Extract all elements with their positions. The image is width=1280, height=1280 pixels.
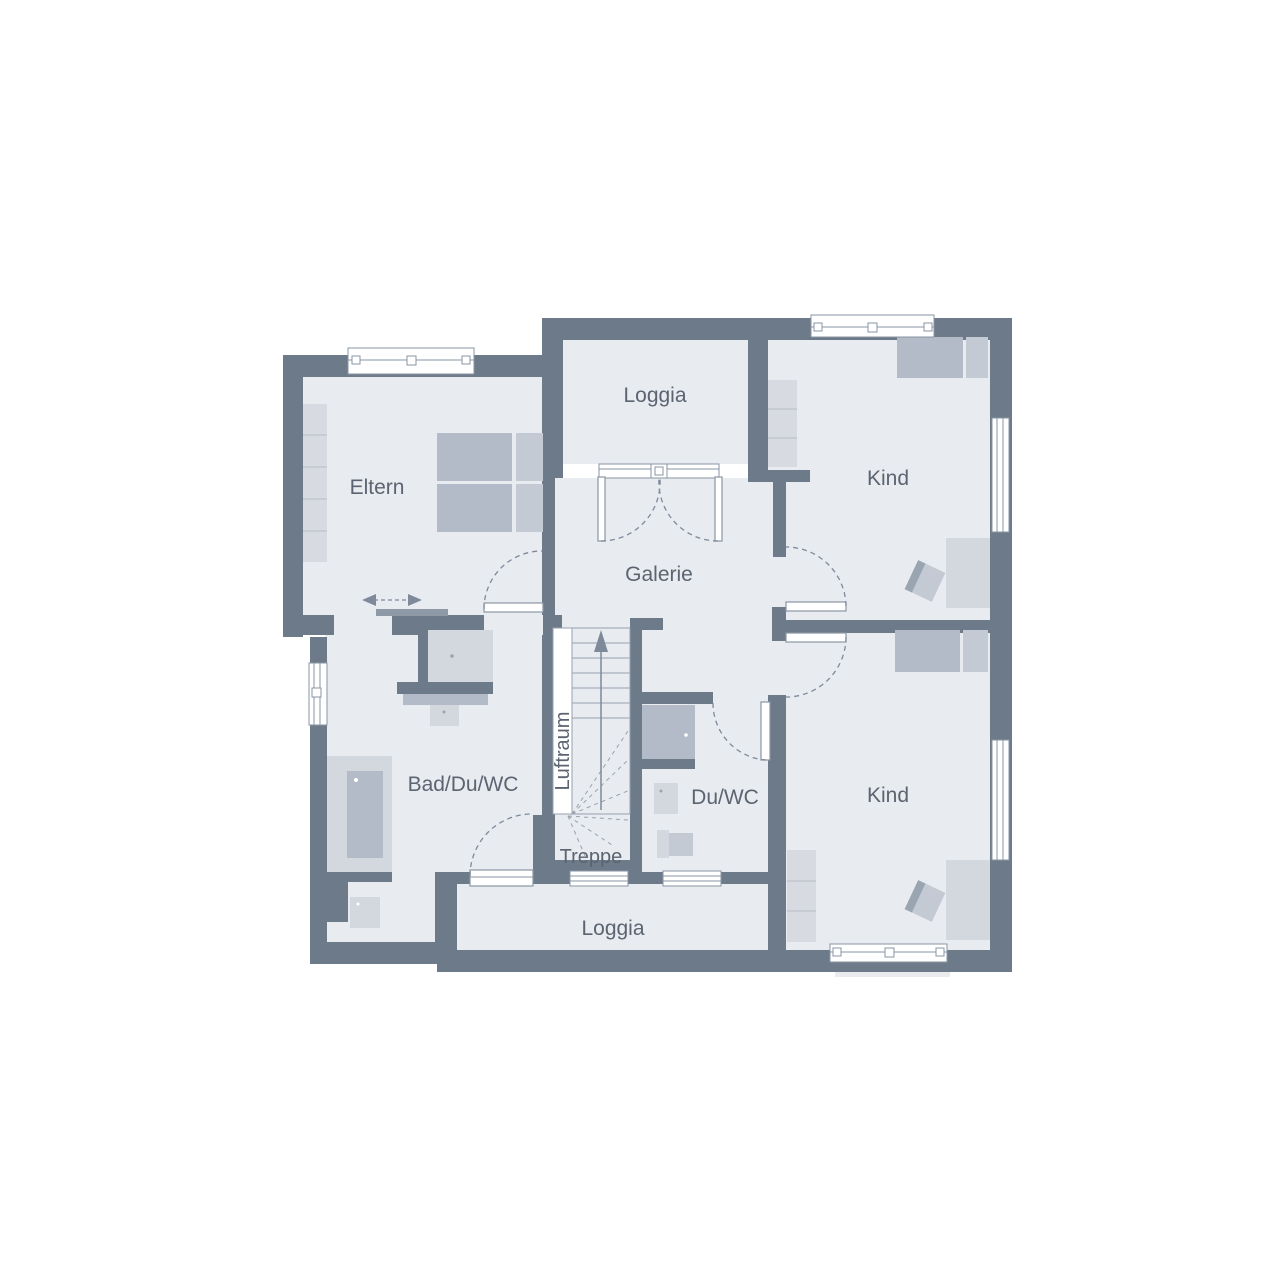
wall-eltern-galerie: [542, 478, 555, 635]
window-loggia-bottom-left: [570, 871, 628, 886]
label-kind-top: Kind: [867, 467, 909, 490]
wall-stair-stub: [630, 618, 663, 630]
desk-kind-bottom: [946, 860, 990, 940]
washbasin-bad: [350, 897, 380, 928]
wardrobe-kind-top: [768, 380, 797, 467]
bed-kind-top: [897, 337, 988, 378]
wall-duwc-top: [642, 692, 713, 704]
window-kind-top: [811, 315, 934, 337]
door-leaf-duwc: [761, 702, 770, 760]
window-eltern-top: [348, 348, 474, 374]
window-loggia-bottom-right: [663, 871, 721, 886]
label-loggia-bottom: Loggia: [581, 917, 644, 940]
wall-bad-pillar: [327, 882, 348, 922]
label-treppe: Treppe: [560, 846, 623, 868]
wall-duwc-kind: [768, 695, 786, 950]
loggia-door-threshold: [599, 464, 719, 478]
shadow-line: [835, 972, 950, 977]
door-leaf-kind-bottom: [786, 633, 846, 642]
door-leaf-bad: [470, 870, 533, 886]
desk-kind-top: [946, 538, 990, 608]
label-loggia-top: Loggia: [623, 384, 686, 407]
sink-duwc: [654, 783, 678, 814]
wall-shower-stub: [418, 630, 428, 688]
wall-loggia-left: [542, 318, 563, 478]
bathtub: [327, 756, 392, 872]
wall-tub-stub: [327, 872, 392, 882]
label-galerie: Galerie: [625, 563, 693, 586]
door-leaf-kind-top: [786, 602, 846, 611]
bed-kind-bottom: [895, 630, 988, 672]
floor-plan-drawing: Eltern Loggia Kind Galerie Bad/Du/WC Luf…: [0, 0, 1280, 1280]
wall-shower-partition: [397, 682, 493, 694]
window-right-bottom: [992, 740, 1009, 860]
wall-bad-bottom: [310, 942, 457, 964]
window-bad-left: [309, 663, 327, 725]
wall-duwc-shower-partition: [642, 759, 695, 769]
wall-stair-right: [630, 618, 642, 874]
door-leaf-eltern: [484, 603, 543, 612]
wall-kind-top-left: [773, 482, 786, 557]
wall-bad-door-side: [533, 815, 545, 874]
wall-eltern-left: [283, 355, 303, 637]
wall-loggia-bottom-left-pier: [435, 872, 457, 950]
label-luftraum: Luftraum: [552, 712, 574, 791]
room-floors: [303, 336, 992, 950]
window-kind-bottom: [830, 944, 947, 962]
wardrobe-kind-bottom: [787, 850, 816, 942]
shower-duwc: [642, 705, 695, 759]
toilet-duwc: [657, 830, 693, 858]
label-eltern: Eltern: [350, 476, 405, 499]
opening-sliding-door: [334, 615, 392, 635]
window-right-top: [992, 418, 1009, 532]
wall-door-stub: [772, 607, 786, 641]
label-du-wc: Du/WC: [691, 786, 759, 809]
wall-top: [543, 318, 1012, 340]
floor-plan-page: Eltern Loggia Kind Galerie Bad/Du/WC Luf…: [0, 0, 1280, 1280]
wardrobe-eltern: [303, 404, 327, 562]
label-kind-bottom: Kind: [867, 784, 909, 807]
sliding-door-panel: [376, 609, 448, 616]
label-bad-du-wc: Bad/Du/WC: [408, 773, 519, 796]
door-leaf-loggia-left: [598, 477, 605, 541]
door-leaf-loggia-right: [715, 477, 722, 541]
wall-niche-bottom: [748, 470, 810, 482]
wall-loggia-right: [748, 340, 768, 482]
